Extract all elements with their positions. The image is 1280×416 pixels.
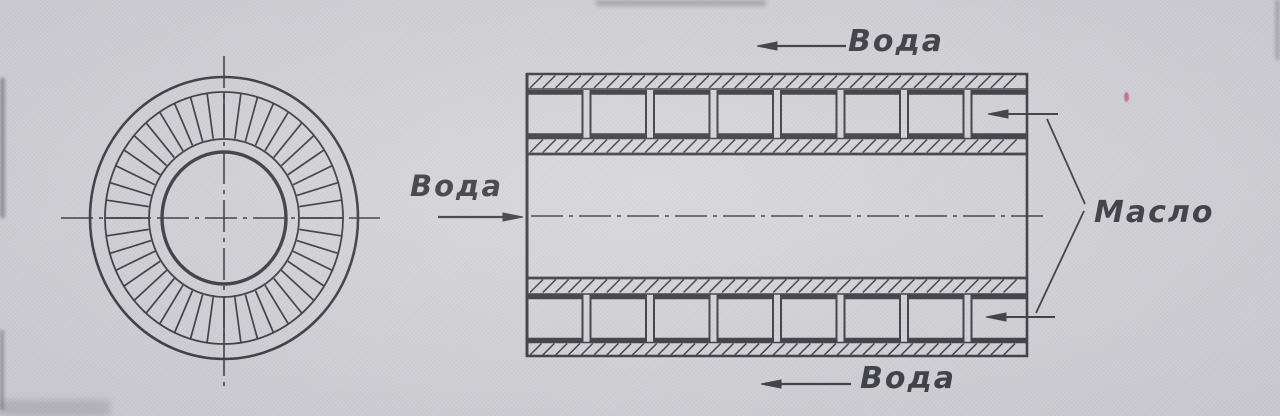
cross-section-view [61,56,380,390]
oil-leader-lines [1036,119,1085,313]
label-water-top: Вода [848,27,944,57]
water-flow-arrow-bottom [761,380,851,388]
label-water-left: Вода [410,172,503,201]
label-water-bottom: Вода [860,364,956,394]
scanned-technical-drawing: Вода Вода Вода Масло [0,0,1280,416]
drawing-canvas [0,0,1280,416]
longitudinal-section-view [526,73,1048,357]
label-oil: Масло [1094,198,1214,228]
water-flow-arrow-top [757,42,846,50]
oil-flow-arrow-top [988,110,1058,118]
water-flow-arrow-left [438,213,523,221]
oil-flow-arrow-bottom [986,313,1055,321]
